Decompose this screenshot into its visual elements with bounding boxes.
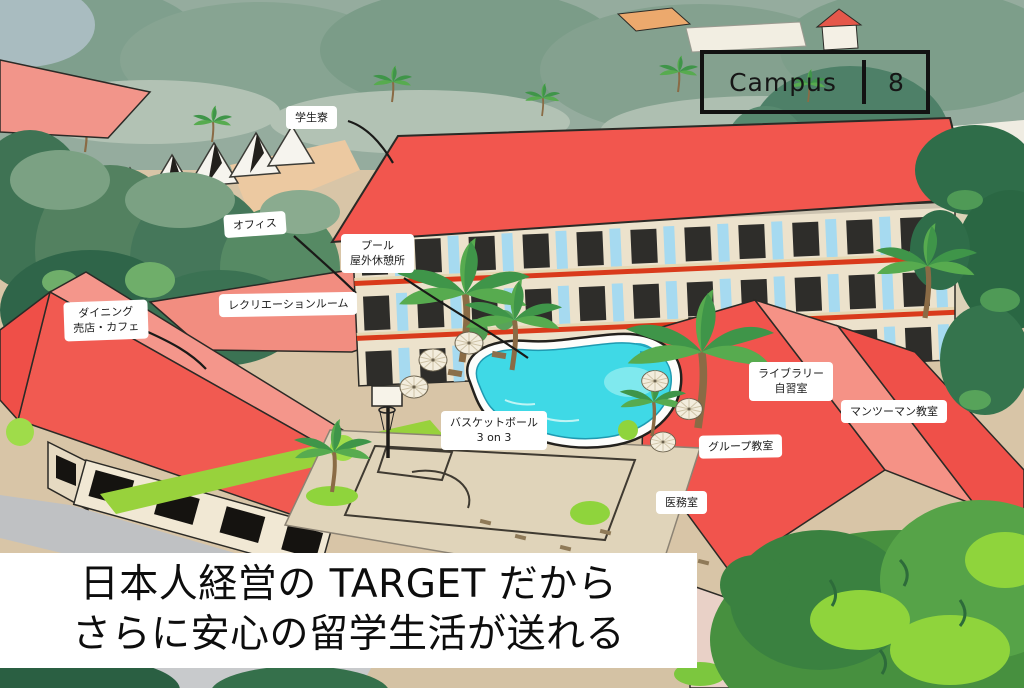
caption-line-1: 日本人経営の TARGET だから — [80, 562, 618, 609]
campus-number-badge: Campus 8 — [700, 50, 930, 114]
label-pool-rest-area: プール 屋外休憩所 — [341, 234, 414, 273]
label-group-classroom: グループ教室 — [699, 434, 783, 459]
label-man-to-man-classroom: マンツーマン教室 — [841, 400, 947, 423]
campus-map-page: Campus 8 学生寮 オフィス プール 屋外休憩所 レクリエーションルーム … — [0, 0, 1024, 688]
label-medical-office: 医務室 — [656, 491, 707, 514]
label-dining-shop-cafe: ダイニング 売店・カフェ — [63, 300, 148, 342]
campus-badge-number: 8 — [866, 68, 926, 97]
label-library-study-room: ライブラリー 自習室 — [749, 362, 833, 401]
caption-line-2: さらに安心の留学生活が送れる — [72, 612, 625, 659]
caption-banner: 日本人経営の TARGET だから さらに安心の留学生活が送れる — [0, 553, 697, 668]
campus-badge-label: Campus — [704, 68, 862, 97]
label-recreation-room: レクリエーションルーム — [219, 292, 358, 318]
label-student-dorm: 学生寮 — [286, 106, 337, 129]
label-office: オフィス — [223, 211, 286, 239]
label-basketball-court: バスケットボール 3 on 3 — [441, 411, 547, 450]
